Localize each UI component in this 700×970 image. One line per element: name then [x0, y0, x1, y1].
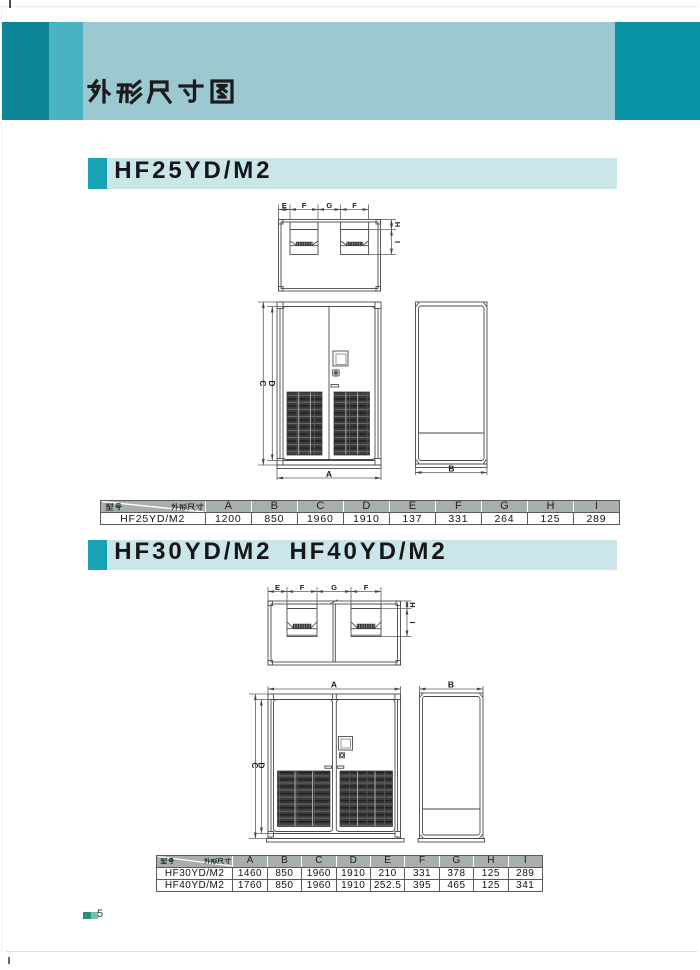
svg-text:A: A [326, 469, 332, 479]
svg-text:E: E [282, 201, 287, 210]
svg-text:B: B [448, 464, 454, 474]
svg-text:G: G [331, 583, 337, 592]
svg-text:I: I [408, 621, 417, 623]
svg-text:F: F [364, 583, 369, 592]
svg-text:F: F [300, 583, 305, 592]
svg-text:F: F [302, 201, 307, 210]
svg-text:B: B [448, 680, 454, 690]
svg-text:A: A [331, 680, 337, 690]
svg-text:E: E [275, 583, 280, 592]
svg-text:D: D [267, 380, 277, 386]
svg-text:H: H [408, 602, 417, 607]
svg-text:I: I [393, 241, 402, 243]
svg-text:H: H [393, 222, 402, 227]
svg-text:G: G [326, 201, 332, 210]
svg-text:D: D [256, 762, 266, 768]
svg-text:C: C [258, 380, 268, 386]
svg-text:F: F [352, 201, 357, 210]
